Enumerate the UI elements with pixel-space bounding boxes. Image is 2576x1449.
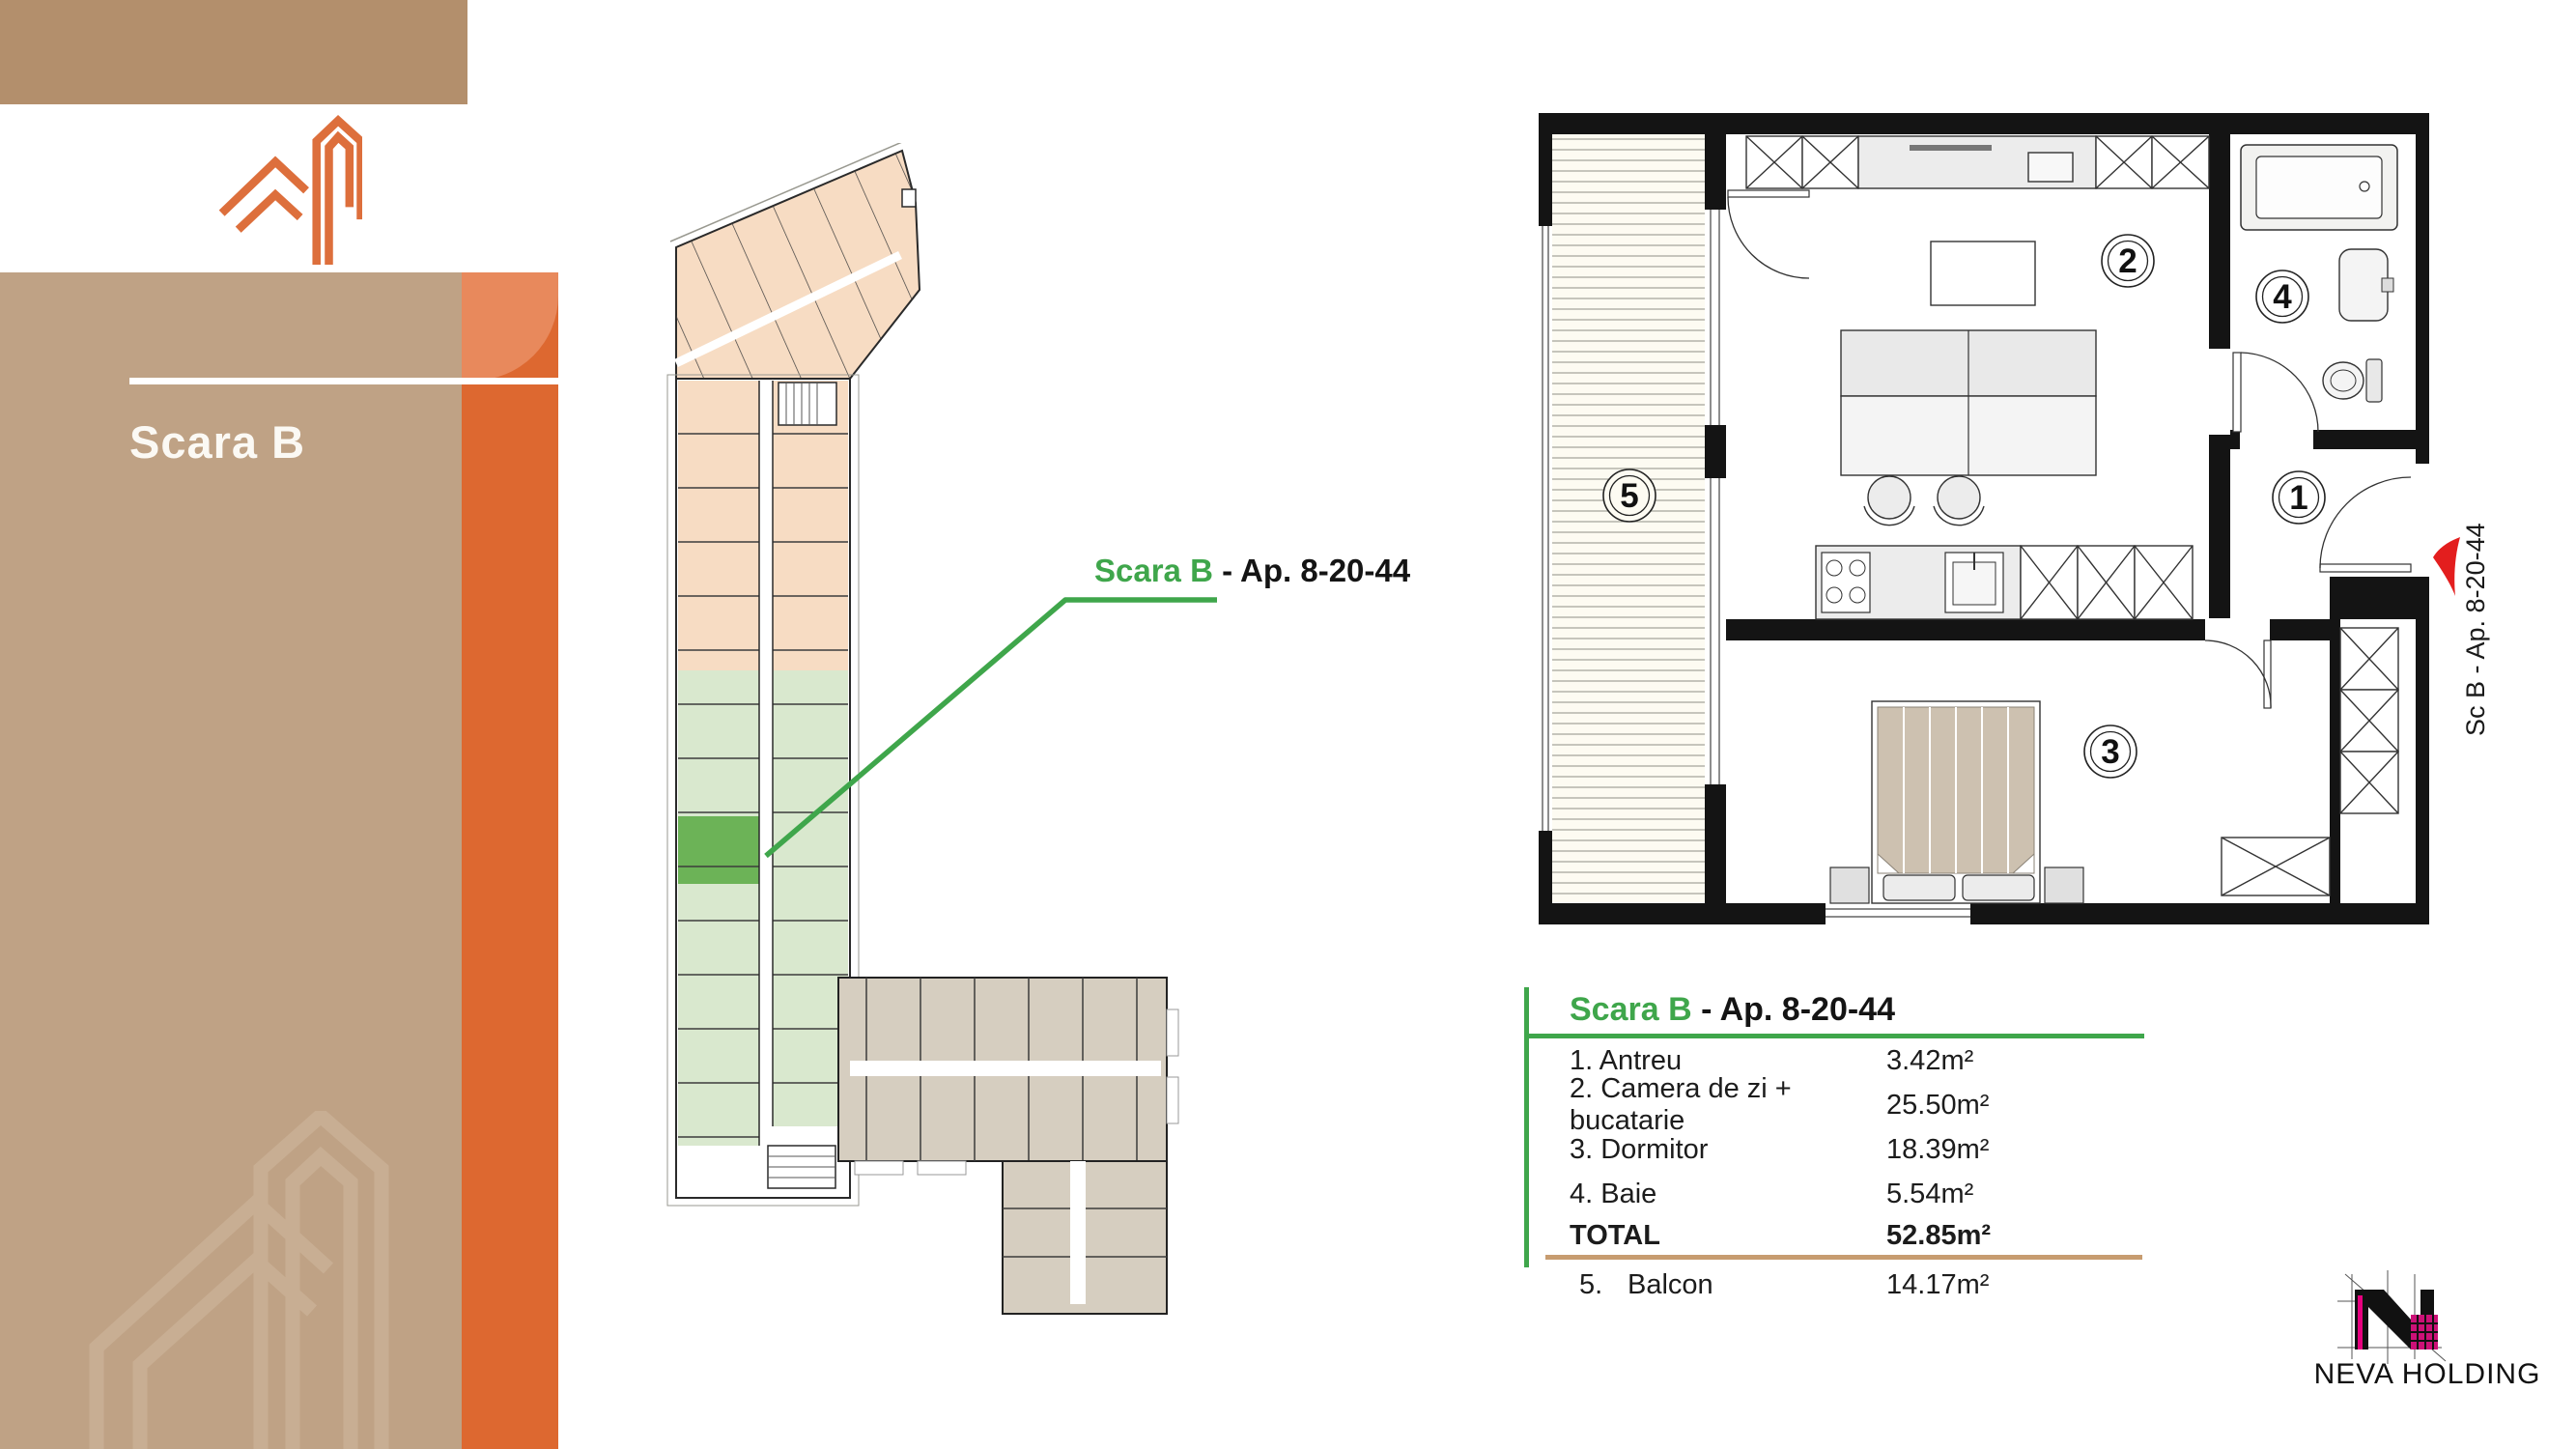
row-area: 25.50m² (1886, 1090, 1989, 1122)
row-label: 2. Camera de zi + bucatarie (1570, 1073, 1886, 1137)
overview-wing-angled (670, 143, 920, 379)
bathroom-fixtures (2241, 145, 2397, 402)
overview-wing-vertical (667, 375, 859, 1206)
stair-heading: Scara B (129, 415, 305, 469)
table-title-underline (1524, 1034, 2144, 1038)
building-icon (217, 108, 362, 265)
sofa (1841, 330, 2096, 475)
room-badge-living: 2 (2102, 235, 2154, 287)
toilet (2323, 359, 2382, 402)
kitchen-tall-cabinets (2021, 546, 2193, 619)
row-label: 3. Dormitor (1570, 1134, 1886, 1166)
svg-text:1: 1 (2289, 479, 2307, 517)
living-furniture (1841, 241, 2096, 526)
neva-holding-monogram-icon (2318, 1270, 2482, 1367)
kitchen-sink (1945, 553, 2003, 612)
callout-stair: Scara B (1094, 553, 1213, 588)
table-row: 4. Baie 5.54m² (1524, 1172, 2200, 1216)
stool-chairs (1864, 476, 1984, 526)
bedroom-wardrobe (2222, 838, 2330, 895)
bathtub (2241, 145, 2397, 230)
kitchen-upper-cabinets (1746, 136, 2209, 188)
table-balcony-row: 5. Balcon 14.17m² (1524, 1260, 2200, 1310)
svg-text:3: 3 (2101, 733, 2119, 771)
building-overview-plan (665, 143, 1217, 1362)
row-area: 5.54m² (1886, 1179, 1973, 1210)
bedroom-furniture (1830, 701, 2330, 903)
nightstand (1830, 867, 1869, 903)
heading-rule (129, 378, 558, 384)
total-area: 52.85m² (1886, 1220, 1991, 1252)
kitchen-counter (1816, 546, 2193, 619)
svg-text:4: 4 (2273, 278, 2292, 316)
brochure-page: SOPORULUI 19 Scara B (0, 0, 2576, 1449)
row-label: 4. Baie (1570, 1179, 1886, 1210)
svg-text:5: 5 (1620, 477, 1638, 515)
table-row: 3. Dormitor 18.39m² (1524, 1127, 2200, 1172)
total-label: TOTAL (1570, 1220, 1886, 1252)
table-accent-border (1524, 987, 1529, 1267)
row-area: 18.39m² (1886, 1134, 1989, 1166)
building-watermark-icon (39, 1111, 454, 1449)
washbasin (2339, 249, 2393, 321)
table-total-row: TOTAL 52.85m² (1524, 1216, 2200, 1255)
bathroom-door (2233, 353, 2318, 432)
sidebar-accent-strip (462, 272, 558, 1449)
nightstand (2045, 867, 2083, 903)
balcony-number: 5. (1579, 1269, 1628, 1301)
apartment-callout-label: Scara B - Ap. 8-20-44 (1094, 553, 1410, 589)
dining-table (1931, 241, 2035, 305)
bed (1872, 701, 2040, 903)
neva-holding-wordmark: NEVA HOLDING (2297, 1358, 2558, 1391)
entrance-door (2320, 477, 2411, 572)
overview-wing-gray (838, 978, 1178, 1314)
area-table: Scara B - Ap. 8-20-44 1. Antreu 3.42m² 2… (1524, 985, 2200, 1310)
balcony-label: Balcon (1628, 1269, 1886, 1301)
stove (1822, 553, 1870, 612)
bedroom-door (2205, 640, 2271, 708)
table-title-stair: Scara B (1570, 991, 1692, 1028)
room-badge-dormitor: 3 (2084, 725, 2137, 778)
entrance-arrow-icon (2433, 537, 2460, 596)
row-label: 1. Antreu (1570, 1045, 1886, 1077)
room-badge-antreu: 1 (2273, 471, 2325, 524)
room-badge-baie: 4 (2256, 270, 2308, 323)
brand-logo: SOPORULUI 19 (58, 104, 473, 273)
callout-apartment: - Ap. 8-20-44 (1213, 553, 1410, 588)
balcony-area: 14.17m² (1886, 1269, 1989, 1301)
table-title-apartment: - Ap. 8-20-44 (1692, 991, 1895, 1028)
apartment-floor-plan: 5 2 4 1 3 Sc (1531, 101, 2502, 942)
svg-text:2: 2 (2118, 242, 2137, 280)
table-row: 2. Camera de zi + bucatarie 25.50m² (1524, 1083, 2200, 1127)
sidebar-top-band (0, 0, 467, 104)
living-door (1728, 190, 1809, 278)
entrance-side-label: Sc B - Ap. 8-20-44 (2461, 523, 2490, 736)
hall-closet (2340, 628, 2398, 813)
monogram-grid (2411, 1315, 2438, 1350)
room-badge-balcon: 5 (1603, 469, 1656, 522)
table-title: Scara B - Ap. 8-20-44 (1570, 991, 2200, 1034)
row-area: 3.42m² (1886, 1045, 1973, 1077)
